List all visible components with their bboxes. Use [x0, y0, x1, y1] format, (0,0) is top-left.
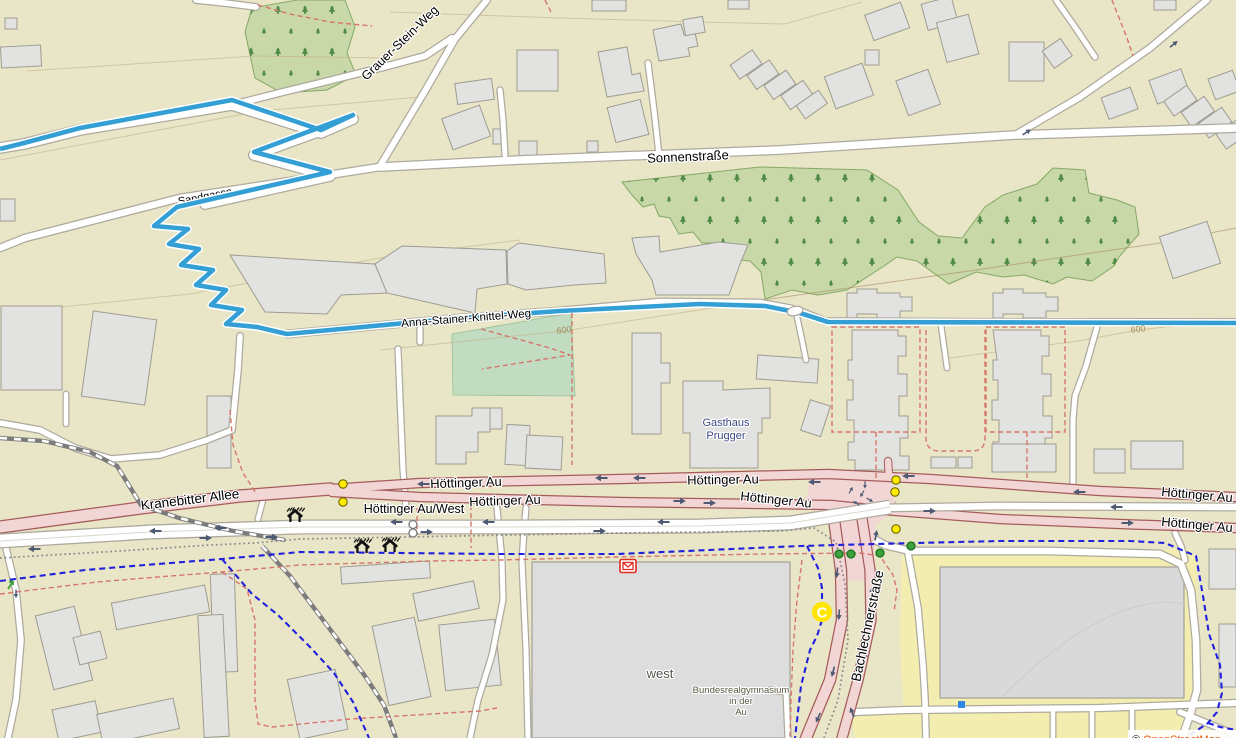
svg-text:Höttinger Au/West: Höttinger Au/West — [364, 502, 465, 516]
svg-text:Prugger: Prugger — [706, 430, 745, 442]
svg-text:C: C — [817, 605, 828, 622]
svg-text:Au: Au — [735, 707, 747, 718]
svg-text:Bundesrealgymnasium: Bundesrealgymnasium — [693, 685, 790, 696]
svg-text:west: west — [646, 666, 674, 681]
svg-text:© OpenStreetMap: © OpenStreetMap — [1132, 734, 1221, 738]
svg-text:600: 600 — [1130, 323, 1146, 335]
svg-text:Höttinger Au: Höttinger Au — [469, 492, 541, 509]
svg-text:Höttinger Au: Höttinger Au — [430, 474, 502, 491]
svg-text:Höttinger Au: Höttinger Au — [687, 471, 759, 487]
svg-text:600: 600 — [556, 324, 572, 336]
svg-text:in der: in der — [729, 696, 753, 707]
svg-text:Gasthaus: Gasthaus — [702, 417, 750, 429]
